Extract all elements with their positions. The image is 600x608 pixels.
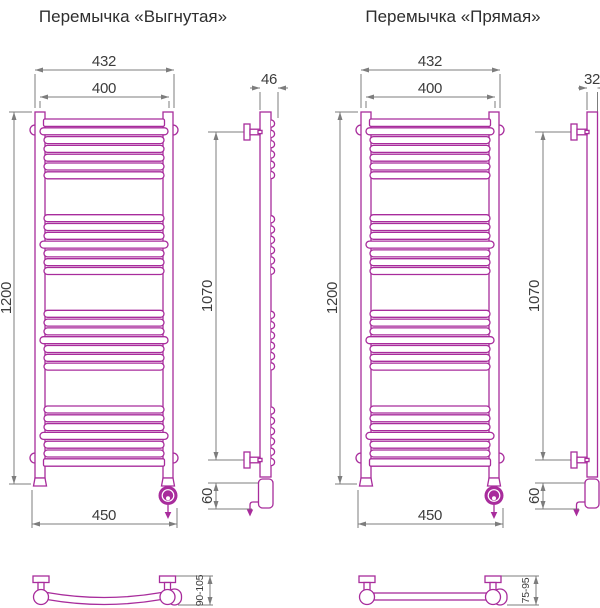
curved-barrel-width-label: 400 bbox=[92, 80, 116, 97]
heating-element-side bbox=[247, 479, 273, 517]
curved-plan-view: 90-105 bbox=[33, 574, 213, 606]
straight-depth-label: 32 bbox=[584, 71, 600, 88]
technical-drawing-canvas: Перемычка «Выгнутая» Перемычка «Прямая» … bbox=[0, 0, 600, 608]
straight-heater-zone-label: 60 bbox=[526, 488, 543, 504]
curved-heater-zone-label: 60 bbox=[199, 488, 216, 504]
curved-depth-label: 46 bbox=[261, 71, 277, 88]
curved-height-label: 1200 bbox=[0, 282, 15, 314]
straight-title: Перемычка «Прямая» bbox=[365, 7, 540, 26]
curved-wall-clearance-label: 90-105 bbox=[194, 574, 206, 606]
straight-mounting-span-label: 1070 bbox=[526, 280, 543, 312]
curved-overall-width-label: 432 bbox=[92, 53, 116, 70]
straight-overall-width-label: 432 bbox=[418, 53, 442, 70]
straight-side-view: 32 1070 60 bbox=[526, 71, 600, 517]
straight-base-width-label: 450 bbox=[418, 507, 442, 524]
curved-mounting-span-label: 1070 bbox=[199, 280, 216, 312]
straight-height-label: 1200 bbox=[324, 282, 341, 314]
straight-plan-view: 75-95 bbox=[359, 576, 539, 605]
straight-barrel-width-label: 400 bbox=[418, 80, 442, 97]
heating-element-side bbox=[573, 479, 599, 517]
curved-base-width-label: 450 bbox=[92, 507, 116, 524]
straight-front-view: 432 400 1200 450 bbox=[324, 53, 504, 528]
straight-wall-clearance-label: 75-95 bbox=[520, 577, 532, 603]
curved-side-view: 46 1070 60 bbox=[199, 71, 288, 517]
curved-front-view: 432 400 1200 450 bbox=[0, 53, 178, 528]
curved-title: Перемычка «Выгнутая» bbox=[39, 7, 227, 26]
